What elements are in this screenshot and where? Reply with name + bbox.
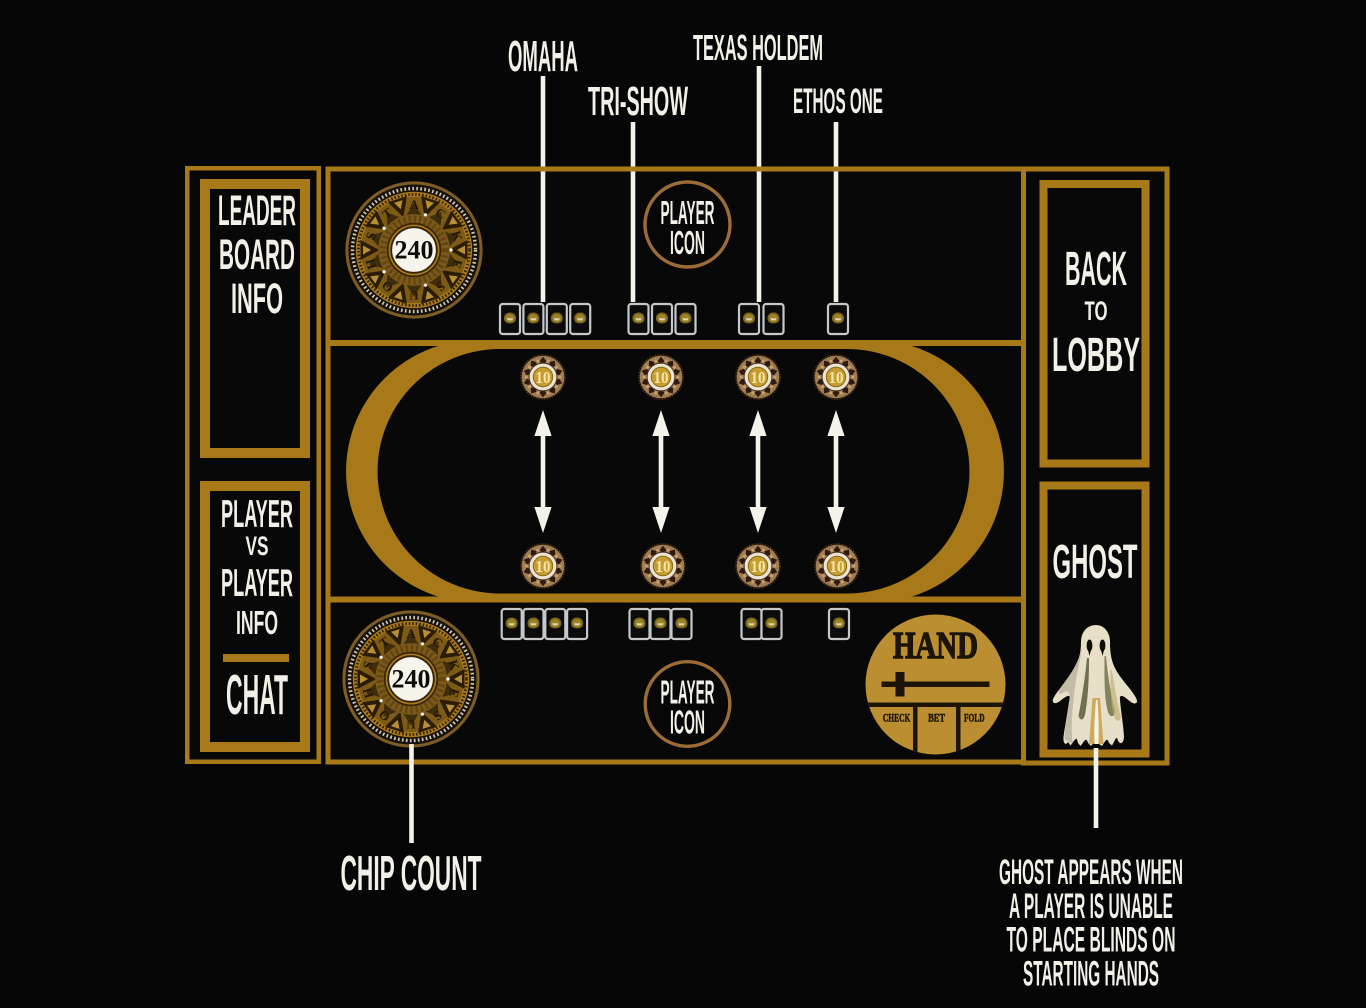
svg-text:PLAYER: PLAYER [221, 493, 293, 536]
svg-text:TRI-SHOW: TRI-SHOW [588, 78, 688, 124]
svg-text:ICON: ICON [670, 224, 705, 261]
svg-text:BET: BET [928, 711, 945, 725]
svg-text:PLAYER: PLAYER [221, 562, 293, 605]
svg-text:INFO: INFO [231, 275, 283, 323]
svg-text:BACK: BACK [1065, 243, 1127, 296]
svg-text:LEADER: LEADER [218, 187, 296, 235]
svg-text:FOLD: FOLD [964, 711, 985, 725]
svg-text:ETHOS ONE: ETHOS ONE [793, 82, 883, 121]
svg-text:CHIP COUNT: CHIP COUNT [341, 847, 482, 901]
svg-text:ICON: ICON [670, 704, 705, 741]
svg-text:OMAHA: OMAHA [508, 32, 578, 81]
svg-text:TO: TO [1085, 296, 1108, 326]
svg-text:HAND: HAND [893, 625, 978, 667]
svg-text:LOBBY: LOBBY [1052, 329, 1140, 382]
svg-text:GHOST: GHOST [1053, 536, 1138, 589]
svg-text:TEXAS HOLDEM: TEXAS HOLDEM [693, 27, 823, 68]
svg-text:VS: VS [246, 531, 269, 561]
svg-text:BOARD: BOARD [219, 231, 295, 279]
svg-text:CHECK: CHECK [883, 711, 911, 725]
svg-text:INFO: INFO [236, 604, 278, 641]
svg-text:STARTING HANDS: STARTING HANDS [1023, 955, 1159, 994]
svg-text:CHAT: CHAT [226, 663, 288, 727]
